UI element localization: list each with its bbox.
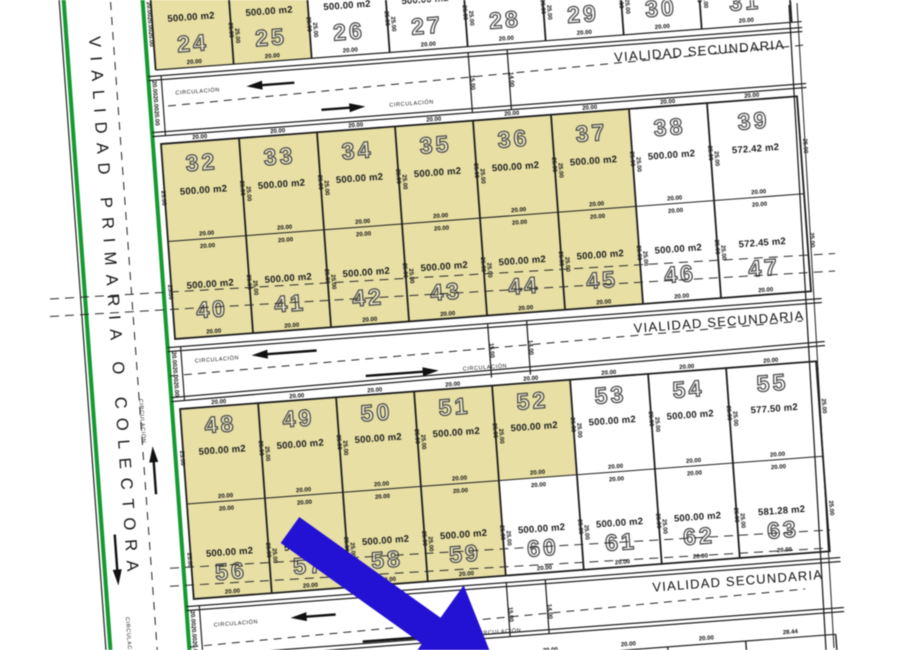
svg-text:20.00: 20.00 (289, 393, 305, 400)
svg-text:20.00: 20.00 (608, 464, 624, 471)
svg-text:20.00: 20.00 (375, 494, 391, 501)
svg-text:20.00: 20.00 (693, 553, 709, 560)
svg-text:34: 34 (341, 136, 374, 164)
svg-text:20.00: 20.00 (277, 225, 293, 232)
svg-text:25.00: 25.00 (244, 186, 251, 202)
svg-text:25.00: 25.00 (263, 446, 270, 462)
svg-text:25.00: 25.00 (731, 411, 738, 427)
svg-text:25.00: 25.00 (419, 434, 426, 450)
svg-text:25.00: 25.00 (719, 245, 726, 261)
svg-text:25.00: 25.00 (251, 280, 258, 296)
svg-text:25.00: 25.00 (550, 157, 557, 173)
svg-text:20.00: 20.00 (343, 47, 359, 54)
svg-text:25.00: 25.00 (556, 163, 563, 179)
svg-text:20.00: 20.00 (440, 311, 456, 318)
svg-text:25.00: 25.00 (264, 543, 271, 559)
svg-text:20.00: 20.00 (739, 18, 755, 25)
svg-text:25.00: 25.00 (498, 525, 505, 541)
svg-text:25.00: 25.00 (545, 5, 552, 21)
svg-text:20.00: 20.00 (752, 202, 768, 209)
svg-text:20.00: 20.00 (751, 189, 767, 196)
svg-text:25.00: 25.00 (185, 552, 192, 568)
svg-text:20.00: 20.00 (270, 128, 286, 135)
svg-text:20.00: 20.00 (589, 201, 605, 208)
svg-text:20.00: 20.00 (686, 458, 702, 465)
svg-text:45: 45 (585, 266, 618, 294)
svg-text:25: 25 (254, 23, 287, 51)
svg-text:25.00: 25.00 (394, 169, 401, 185)
svg-text:29: 29 (566, 0, 599, 28)
svg-text:40: 40 (195, 295, 228, 323)
svg-text:24: 24 (176, 29, 209, 57)
svg-text:25.00: 25.00 (479, 257, 486, 273)
svg-text:43: 43 (429, 277, 462, 305)
svg-text:20.00: 20.00 (152, 96, 159, 112)
svg-text:47: 47 (747, 254, 780, 282)
svg-text:25.00: 25.00 (617, 0, 624, 9)
svg-text:20.00: 20.00 (668, 208, 684, 215)
svg-text:20.00: 20.00 (211, 399, 227, 406)
svg-text:20.00: 20.00 (421, 41, 437, 48)
svg-text:49: 49 (282, 404, 315, 432)
svg-text:20.00: 20.00 (770, 452, 786, 459)
svg-text:44: 44 (507, 272, 540, 300)
svg-text:25.00: 25.00 (491, 423, 498, 439)
svg-text:20.00: 20.00 (303, 583, 319, 590)
svg-text:20.00: 20.00 (199, 230, 215, 237)
svg-text:20.00: 20.00 (284, 323, 300, 330)
svg-text:20.00: 20.00 (445, 381, 461, 388)
svg-text:20.00: 20.00 (219, 505, 235, 512)
svg-text:52: 52 (516, 387, 549, 415)
svg-text:25.00: 25.00 (635, 245, 642, 261)
svg-text:25.00: 25.00 (628, 151, 635, 167)
svg-text:20.00: 20.00 (499, 36, 515, 43)
svg-text:20.00: 20.00 (355, 219, 371, 226)
svg-text:20.00: 20.00 (687, 470, 703, 477)
svg-text:20.00: 20.00 (218, 493, 234, 500)
svg-text:20.00: 20.00 (511, 207, 527, 214)
svg-text:20.00: 20.00 (459, 571, 475, 578)
svg-text:20.00: 20.00 (453, 488, 469, 495)
svg-text:25.00: 25.00 (575, 423, 582, 439)
svg-text:25.00: 25.00 (400, 174, 407, 190)
svg-text:20.00: 20.00 (225, 588, 241, 595)
svg-text:25.00: 25.00 (413, 429, 420, 445)
svg-text:28: 28 (488, 6, 521, 34)
svg-text:25.00: 25.00 (505, 531, 512, 547)
svg-text:20.00: 20.00 (582, 105, 598, 112)
svg-text:25.00: 25.00 (461, 5, 468, 21)
svg-text:25.00: 25.00 (227, 23, 234, 39)
svg-text:39: 39 (737, 107, 770, 135)
svg-text:20.00: 20.00 (278, 237, 294, 244)
svg-text:20.00: 20.00 (596, 299, 612, 306)
svg-text:25.00: 25.00 (713, 239, 720, 255)
svg-text:20.00: 20.00 (621, 641, 637, 648)
svg-text:20.00: 20.00 (512, 220, 528, 227)
svg-text:25.00: 25.00 (245, 275, 252, 291)
svg-text:25.00: 25.00 (712, 151, 719, 167)
svg-text:63: 63 (766, 516, 799, 544)
svg-text:38: 38 (653, 113, 686, 141)
svg-text:25.00: 25.00 (311, 22, 318, 38)
svg-text:25.00: 25.00 (497, 429, 504, 445)
svg-text:25.00: 25.00 (166, 284, 173, 300)
svg-text:20.00: 20.00 (433, 213, 449, 220)
svg-text:20.00: 20.00 (297, 500, 313, 507)
svg-text:20.00: 20.00 (577, 30, 593, 37)
svg-text:25.00: 25.00 (563, 257, 570, 273)
svg-text:26: 26 (332, 17, 365, 45)
svg-text:25.00: 25.00 (257, 441, 264, 457)
svg-text:25.00: 25.00 (316, 175, 323, 191)
svg-text:20.00: 20.00 (609, 476, 625, 483)
svg-text:25.00: 25.00 (576, 519, 583, 535)
svg-text:25.00: 25.00 (341, 440, 348, 456)
svg-text:20.00: 20.00 (531, 482, 547, 489)
svg-text:25.00: 25.00 (323, 269, 330, 285)
svg-text:15.00: 15.00 (468, 75, 475, 91)
svg-text:20.00: 20.00 (206, 328, 222, 335)
svg-text:25.00: 25.00 (401, 263, 408, 279)
svg-text:20.00: 20.00 (744, 93, 760, 100)
svg-text:20.00: 20.00 (660, 99, 676, 106)
svg-text:51: 51 (438, 392, 471, 420)
svg-text:20.00: 20.00 (699, 635, 715, 642)
svg-text:25.00: 25.00 (178, 450, 185, 466)
svg-text:25.00: 25.00 (725, 405, 732, 421)
svg-text:20.00: 20.00 (150, 81, 157, 97)
svg-text:25.00: 25.00 (732, 507, 739, 523)
svg-text:20.00: 20.00 (348, 122, 364, 129)
svg-text:25.00: 25.00 (647, 411, 654, 427)
svg-text:25.00: 25.00 (238, 181, 245, 197)
svg-text:20.00: 20.00 (192, 134, 208, 141)
svg-text:25.00: 25.00 (539, 0, 546, 15)
svg-text:25.00: 25.00 (335, 435, 342, 451)
svg-text:20.00: 20.00 (452, 475, 468, 482)
svg-text:20.00: 20.00 (655, 24, 671, 31)
svg-text:56: 56 (214, 557, 247, 585)
svg-text:55: 55 (756, 369, 789, 397)
svg-text:20.00: 20.00 (362, 317, 378, 324)
svg-text:25.00: 25.00 (389, 16, 396, 32)
svg-text:14.00: 14.00 (546, 604, 553, 620)
svg-text:25.00: 25.00 (478, 169, 485, 185)
svg-text:20.00: 20.00 (537, 565, 553, 572)
svg-text:20.00: 20.00 (296, 487, 312, 494)
svg-text:31: 31 (728, 0, 761, 16)
svg-text:20.00: 20.00 (374, 481, 390, 488)
svg-text:53: 53 (594, 381, 627, 409)
svg-text:25.00: 25.00 (420, 531, 427, 547)
svg-text:20.00: 20.00 (367, 387, 383, 394)
svg-text:20.00: 20.00 (601, 370, 617, 377)
svg-text:25.00: 25.00 (467, 11, 474, 27)
svg-text:25.00: 25.00 (739, 513, 746, 529)
svg-text:20.00: 20.00 (172, 382, 179, 398)
svg-text:25.00: 25.00 (472, 163, 479, 179)
svg-text:25.00: 25.00 (654, 513, 661, 529)
svg-text:25.00: 25.00 (706, 145, 713, 161)
svg-text:20.00: 20.00 (590, 214, 606, 221)
svg-text:37: 37 (575, 119, 608, 147)
svg-text:25.00: 25.00 (485, 263, 492, 279)
svg-text:20.00: 20.00 (191, 641, 198, 650)
svg-text:25.00: 25.00 (653, 417, 660, 433)
svg-text:25.00: 25.00 (159, 190, 166, 206)
svg-text:20.00: 20.00 (504, 111, 520, 118)
svg-text:20.00: 20.00 (518, 305, 534, 312)
svg-text:35: 35 (419, 130, 452, 158)
svg-text:33: 33 (263, 142, 296, 170)
svg-text:20.00: 20.00 (426, 116, 442, 123)
svg-text:48: 48 (204, 410, 237, 438)
svg-text:25.00: 25.00 (383, 11, 390, 27)
svg-text:20.00: 20.00 (356, 231, 372, 238)
svg-text:50: 50 (360, 398, 393, 426)
svg-text:20.00: 20.00 (771, 464, 787, 471)
svg-text:20.00: 20.00 (171, 367, 178, 383)
svg-text:25.00: 25.00 (623, 0, 630, 15)
svg-text:32: 32 (185, 148, 218, 176)
svg-text:54: 54 (672, 375, 705, 403)
svg-text:25.00: 25.00 (407, 268, 414, 284)
svg-text:20.00: 20.00 (170, 352, 177, 368)
svg-text:20.00: 20.00 (530, 470, 546, 477)
svg-text:25.00: 25.00 (427, 536, 434, 552)
svg-text:58: 58 (370, 545, 403, 573)
svg-text:20.00: 20.00 (523, 376, 539, 383)
svg-text:25.00: 25.00 (701, 0, 708, 9)
svg-text:20.00: 20.00 (674, 293, 690, 300)
svg-text:25.00: 25.00 (233, 28, 240, 44)
svg-text:20.00: 20.00 (189, 611, 196, 627)
svg-text:15.00: 15.00 (488, 343, 495, 359)
svg-text:25.00: 25.00 (634, 157, 641, 173)
svg-text:25.00: 25.00 (322, 180, 329, 196)
svg-text:14.00: 14.00 (507, 72, 514, 88)
svg-text:27: 27 (410, 11, 443, 39)
svg-text:25.00: 25.00 (583, 525, 590, 541)
svg-text:14.00: 14.00 (527, 340, 534, 356)
svg-text:20.00: 20.00 (153, 111, 160, 127)
svg-text:20.00: 20.00 (200, 243, 216, 250)
svg-text:28.44: 28.44 (783, 629, 799, 636)
svg-text:20.00: 20.00 (265, 53, 281, 60)
svg-text:20.00: 20.00 (667, 195, 683, 202)
svg-text:46: 46 (663, 260, 696, 288)
svg-text:25.00: 25.00 (827, 500, 834, 516)
svg-text:25.00: 25.00 (305, 17, 312, 33)
svg-text:36: 36 (497, 125, 530, 153)
svg-text:20.00: 20.00 (758, 287, 774, 294)
svg-text:20.00: 20.00 (190, 626, 197, 642)
svg-text:25.00: 25.00 (661, 519, 668, 535)
svg-text:15.00: 15.00 (507, 607, 514, 623)
svg-text:20.00: 20.00 (187, 59, 203, 66)
svg-text:30: 30 (644, 0, 677, 22)
svg-text:20.00: 20.00 (434, 225, 450, 232)
svg-text:25.00: 25.00 (557, 251, 564, 267)
svg-text:59: 59 (448, 539, 481, 567)
svg-text:25.00: 25.00 (569, 417, 576, 433)
svg-text:62: 62 (682, 522, 715, 550)
svg-text:20.00: 20.00 (679, 364, 695, 371)
svg-text:20.00: 20.00 (763, 358, 779, 365)
